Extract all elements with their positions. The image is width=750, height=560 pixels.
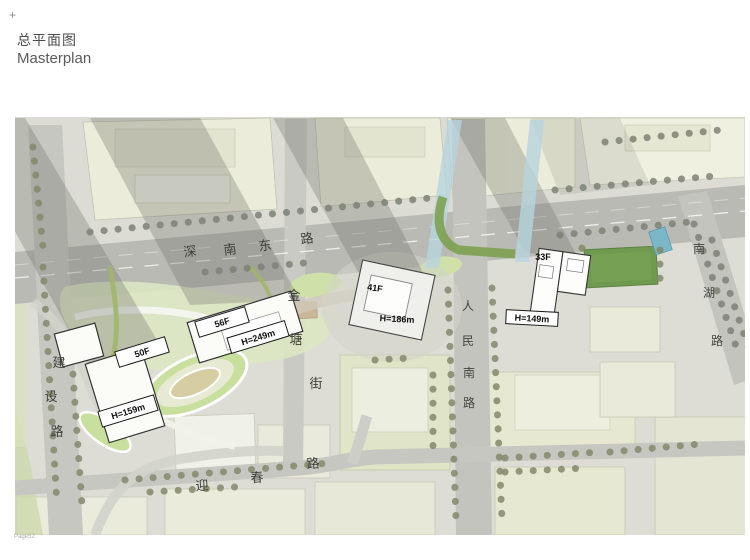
road-label-char: 路 [711,333,723,348]
road-label-char: 春 [250,469,264,485]
road-label-char: 湖 [703,285,715,300]
road-label-char: 南 [222,241,237,258]
road-label-char: 迎 [195,477,209,493]
road-label-char: 路 [299,230,314,247]
context-block [315,482,435,535]
context-block [165,489,305,535]
green-plot [495,467,625,535]
tower-33f-wing [557,252,590,296]
road-label-char: 路 [306,455,320,471]
road-label-char: 南 [463,365,475,380]
context-building [600,362,675,417]
road-label-char: 深 [182,243,197,260]
slide: + 总平面图 Masterplan [0,0,750,560]
height-label: H=149m [514,313,549,325]
tower-33f-roof [566,259,584,273]
floors-label: 33F [535,252,551,262]
context-building [625,125,710,151]
page-title-chinese: 总平面图 [17,30,77,50]
plot-building [515,375,610,430]
road-label-char: 金 [287,288,300,303]
context-building [590,307,660,352]
corner-plus-mark: + [9,8,16,22]
green-plot [655,417,745,535]
road-label-char: 街 [309,376,322,391]
road-label-char: 设 [44,389,57,404]
road-label-char: 南 [693,241,705,256]
road-label-char: 人 [462,299,474,313]
road-label-char: 东 [257,237,272,254]
road-label-char: 建 [52,355,65,370]
road-label-char: 塘 [289,332,302,347]
sports-court-inner [590,251,651,282]
masterplan-drawing: 50F H=159m 56F H=249m 41F H=186m 33F [15,117,745,535]
page-title-english: Masterplan [17,50,91,67]
road-label-char: 路 [463,395,475,410]
height-label: H=186m [379,313,414,325]
road-label-char: 民 [462,334,474,348]
tower-33f-roof [538,265,554,279]
road-label-char: 路 [50,424,63,439]
page-number: Page52 [14,534,35,540]
